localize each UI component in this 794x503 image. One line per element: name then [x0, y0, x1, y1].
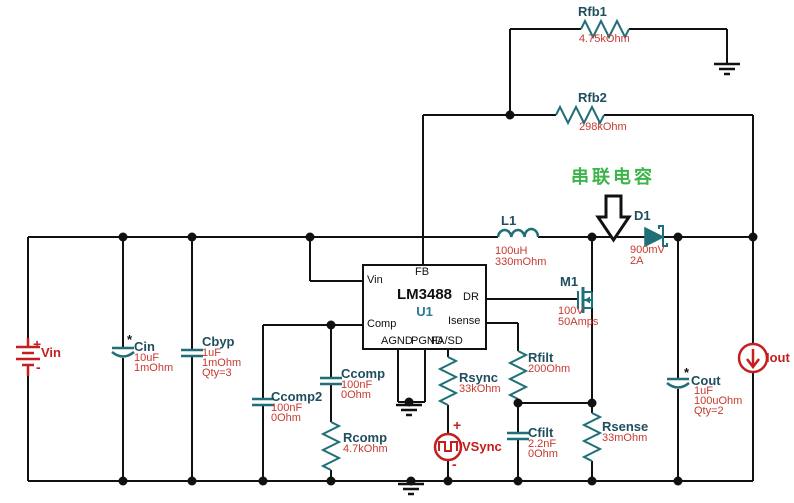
series-capacitor-annotation: 串联电容: [571, 168, 655, 186]
cout-qty: Qty=2: [694, 406, 724, 417]
ccomp-capacitor-symbol[interactable]: [320, 378, 342, 384]
u1-pin-fasd: FA/SD: [431, 336, 463, 347]
l1-ref: L1: [501, 214, 516, 227]
vin-ref: Vin: [41, 346, 61, 359]
rfilt-value: 200Ohm: [528, 364, 570, 375]
d1-diode-symbol[interactable]: [645, 226, 667, 246]
cout-polarity-mark: *: [684, 366, 689, 379]
cin-polarity-mark: *: [127, 333, 132, 346]
vsync-minus-sign: -: [452, 457, 457, 471]
vsync-plus-sign: +: [453, 418, 461, 432]
cbyp-qty: Qty=3: [202, 368, 232, 379]
cout-capacitor-symbol[interactable]: [667, 379, 689, 388]
u1-pin-agnd: AGND: [381, 336, 413, 347]
rsync-value: 33kOhm: [459, 384, 501, 395]
ccomp-value-2: 0Ohm: [341, 390, 371, 401]
cbyp-capacitor-symbol[interactable]: [181, 350, 203, 356]
schematic-canvas: Rfb1 4.75kOhm Rfb2 298kOhm 串联电容 L1 100uH…: [0, 0, 794, 503]
d1-value-2: 2A: [630, 256, 643, 267]
iout-ref: Iout: [766, 351, 790, 364]
l1-value-2: 330mOhm: [495, 257, 546, 268]
d1-ref: D1: [634, 209, 651, 222]
rcomp-resistor-symbol[interactable]: [323, 422, 339, 470]
rcomp-value: 4.7kOhm: [343, 444, 388, 455]
cin-capacitor-symbol[interactable]: [112, 348, 134, 357]
u1-pin-fb: FB: [415, 267, 429, 278]
rfb1-value: 4.75kOhm: [579, 34, 630, 45]
rsense-resistor-symbol[interactable]: [584, 413, 600, 461]
cin-value-2: 1mOhm: [134, 363, 173, 374]
u1-pin-vin: Vin: [367, 275, 383, 286]
annotation-arrow-icon: [598, 196, 629, 240]
m1-ref: M1: [560, 275, 578, 288]
vin-minus-sign: -: [36, 360, 41, 374]
rfb1-ref: Rfb1: [578, 5, 607, 18]
cfilt-value-2: 0Ohm: [528, 449, 558, 460]
schematic-svg: [0, 0, 794, 503]
vsync-ref: VSync: [462, 440, 502, 453]
u1-pin-dr: DR: [463, 292, 479, 303]
rsync-resistor-symbol[interactable]: [440, 357, 456, 405]
u1-pin-comp: Comp: [367, 319, 396, 330]
ccomp2-value-2: 0Ohm: [271, 413, 301, 424]
u1-pin-isense: Isense: [448, 316, 480, 327]
vsync-source-symbol[interactable]: [435, 434, 461, 460]
rfilt-resistor-symbol[interactable]: [510, 351, 526, 399]
rfb2-value: 298kOhm: [579, 122, 627, 133]
m1-value-2: 50Amps: [558, 317, 598, 328]
rsense-value: 33mOhm: [602, 433, 647, 444]
rfb2-ref: Rfb2: [578, 91, 607, 104]
iout-source-symbol[interactable]: [739, 344, 767, 372]
cfilt-capacitor-symbol[interactable]: [507, 433, 529, 439]
vin-plus-sign: +: [33, 337, 41, 351]
l1-inductor-symbol[interactable]: [498, 229, 538, 237]
